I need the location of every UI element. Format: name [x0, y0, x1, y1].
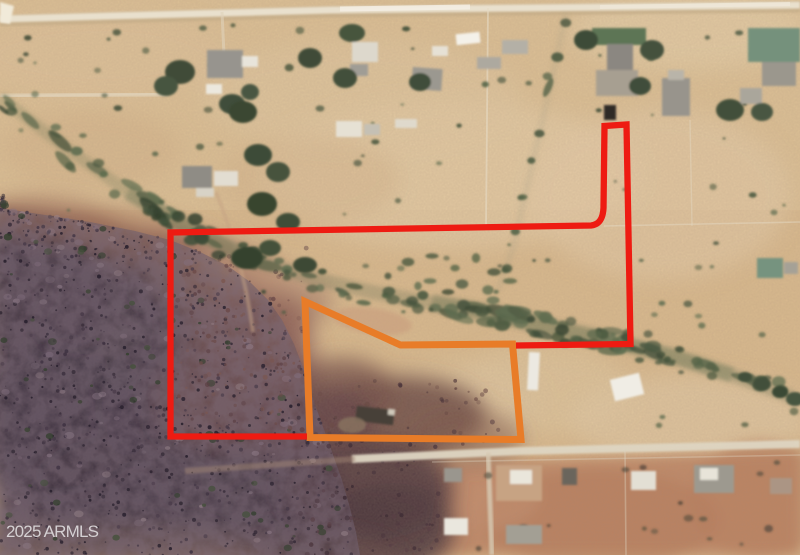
- svg-text:2025 ARMLS: 2025 ARMLS: [6, 522, 99, 541]
